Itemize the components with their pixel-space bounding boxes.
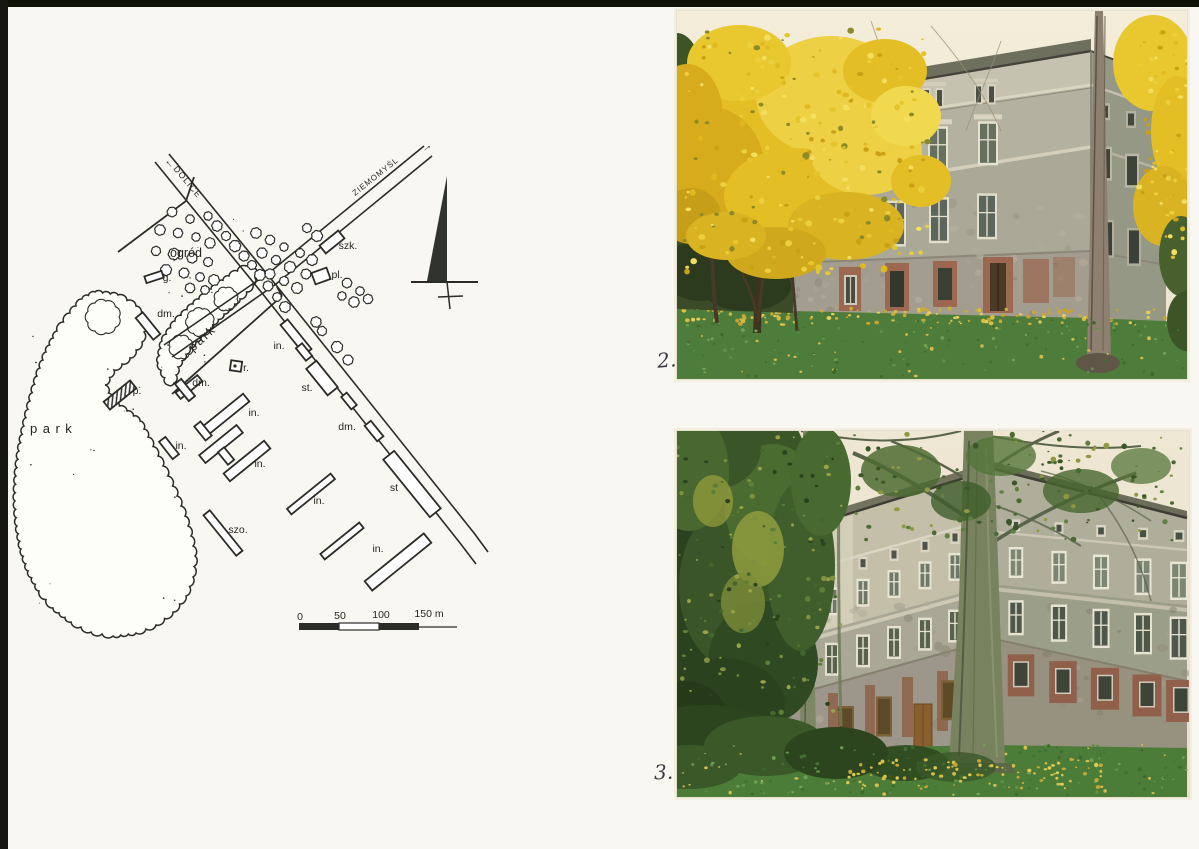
label-pl: pl. (331, 269, 342, 281)
building-dm-b (365, 421, 384, 442)
label-st-mid: st. (301, 382, 312, 394)
scale-tick-50: 50 (334, 610, 346, 622)
north-arrow (411, 176, 478, 309)
photo-3 (676, 430, 1190, 798)
scale-tick-0: 0 (297, 611, 303, 623)
label-dm2: dm. (192, 377, 210, 389)
label-in-small: in. (175, 440, 186, 452)
label-in-road: in. (273, 340, 284, 352)
building-u-link2 (218, 447, 234, 464)
building-g (144, 271, 163, 283)
label-r: r. (243, 362, 249, 374)
scale-bar: 0 50 100 150 m (297, 608, 457, 630)
building-r-dot (233, 364, 236, 367)
building-u-bar1 (203, 394, 250, 434)
road-label-ziemomysl: ZIEMOMYŚL (351, 156, 401, 198)
label-dm-pair: dm. (338, 421, 356, 433)
area-label-park-large: park (30, 421, 77, 436)
label-in-u-top: in. (248, 407, 259, 419)
scan-edge-top (0, 0, 1199, 7)
road-labels: ← DOLICE ZIEMOMYŚL → (162, 138, 436, 200)
label-szo: szo. (228, 524, 247, 536)
label-st-long: st (390, 482, 398, 494)
road-label-ziemomysl-arrow: → (418, 138, 435, 155)
label-g: g. (163, 272, 172, 284)
photo-2 (676, 10, 1188, 380)
label-in-long: in. (372, 543, 383, 555)
scale-tick-150m: 150 m (414, 608, 443, 620)
building-in-long (365, 533, 432, 590)
label-p: p. (133, 385, 142, 397)
scale-tick-100: 100 (372, 609, 390, 621)
label-dm1: dm. (157, 308, 175, 320)
building-in-perp2 (320, 523, 363, 560)
label-in-u-bottom: in. (254, 458, 265, 470)
photo-2-caption: 2. (656, 347, 677, 373)
building-in-perp1 (287, 474, 335, 515)
photo-3-caption: 3. (654, 760, 674, 785)
label-in-perp1: in. (313, 495, 324, 507)
label-szk: szk. (339, 240, 358, 252)
boundary-lines (118, 177, 282, 394)
building-dm-a (341, 393, 357, 410)
site-plan-map: 0 50 100 150 m ← DOLICE ZIEMOMYŚL → ogró… (0, 88, 502, 670)
building-pl (311, 268, 330, 285)
area-label-ogrod2: ogród (170, 246, 202, 260)
site-plan-svg: 0 50 100 150 m ← DOLICE ZIEMOMYŚL → ogró… (0, 88, 502, 670)
